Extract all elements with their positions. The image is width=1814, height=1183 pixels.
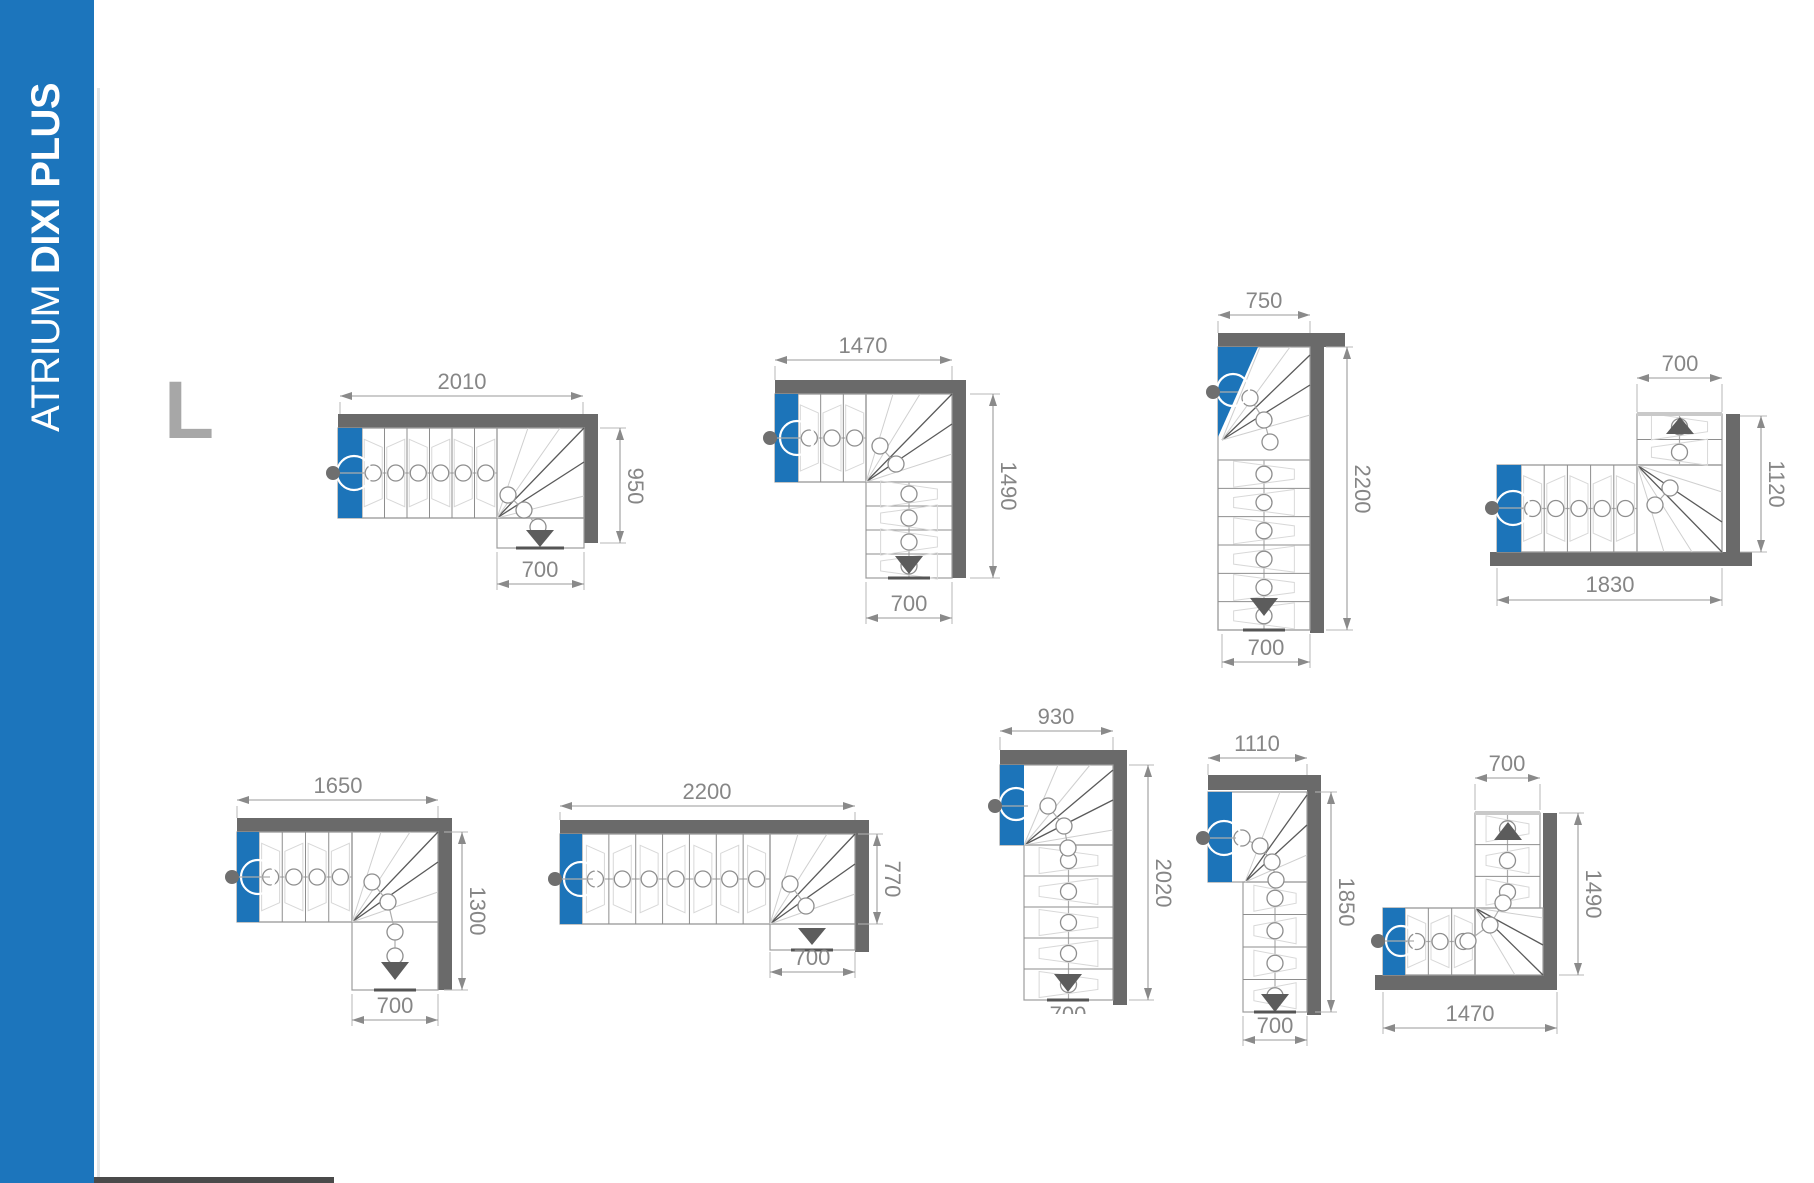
- entry-marker: [1371, 934, 1385, 948]
- dim-label-right: 1300: [465, 887, 490, 936]
- stair-plan-4: 700 1120 1830: [1485, 351, 1789, 606]
- stair-plan-7: 930 2020 700: [988, 704, 1176, 1040]
- dim-label-exit: 700: [1257, 1013, 1294, 1038]
- wall-right: [1307, 775, 1321, 1015]
- stair-plan-1: 2010 950 700: [326, 369, 648, 590]
- stair-plan-8: 1110 1850 700: [1196, 731, 1359, 1046]
- entry-marker: [1485, 501, 1499, 515]
- turn-fan: [352, 832, 438, 922]
- wall-top: [237, 818, 452, 832]
- entry-marker: [988, 799, 1002, 813]
- dim-label-exit: 700: [1248, 635, 1285, 660]
- turn-steps: [872, 438, 904, 472]
- wall-bottom: [1375, 975, 1557, 990]
- dim-label-right: 770: [880, 861, 905, 898]
- wall-top: [1208, 775, 1313, 790]
- dim-label-exit: 700: [794, 945, 831, 970]
- stair-plan-5: 1650 1300 700: [225, 773, 490, 1026]
- dim-label-right: 1490: [996, 462, 1021, 511]
- dim-label-right: 2200: [1350, 465, 1375, 514]
- entry-marker: [1196, 831, 1210, 845]
- entry-marker: [548, 872, 562, 886]
- wall-top: [338, 414, 598, 428]
- stair-run-down: [1243, 882, 1307, 1012]
- wall-right: [1543, 813, 1557, 990]
- stair-run: [582, 834, 770, 924]
- stair-plan-9: 700 1490 1470: [1371, 751, 1606, 1034]
- dim-label-right: 1490: [1581, 870, 1606, 919]
- wall-right: [1113, 750, 1127, 1005]
- turn-steps: [364, 874, 403, 964]
- dim-label-top: 1470: [839, 333, 888, 358]
- dim-label-right: 1850: [1334, 878, 1359, 927]
- catalog-page: ATRIUM DIXI PLUS L 2010 950 700: [0, 0, 1814, 1183]
- stair-run: [1521, 465, 1637, 552]
- dim-label-top: 2010: [438, 369, 487, 394]
- dim-label-top: 1650: [314, 773, 363, 798]
- clip-cover: [1030, 1014, 1106, 1040]
- dim-label-right: 950: [623, 468, 648, 505]
- wall-right: [438, 818, 452, 990]
- dim-label-top: 2200: [683, 779, 732, 804]
- entry-marker: [763, 431, 777, 445]
- dim-label-right: 2020: [1151, 859, 1176, 908]
- dim-label-top: 750: [1246, 288, 1283, 313]
- wall-top: [560, 820, 869, 834]
- dim-label-exit: 700: [377, 993, 414, 1018]
- exit-arrow-down-icon: [526, 530, 554, 547]
- exit-arrow-up-icon: [1494, 822, 1522, 840]
- dim-label-exit: 700: [522, 557, 559, 582]
- entry-marker: [1206, 385, 1220, 399]
- wall-right: [1726, 414, 1740, 566]
- first-step: [1000, 765, 1024, 845]
- exit-arrow-down-icon: [1054, 974, 1082, 992]
- dim-label-exit: 700: [891, 591, 928, 616]
- turn-steps: [1460, 895, 1511, 949]
- wall-bottom: [1490, 552, 1752, 566]
- wall-top: [1000, 750, 1127, 765]
- entry-marker: [225, 870, 239, 884]
- stair-plan-2: 1470 1490 700: [763, 333, 1021, 624]
- wall-right: [1310, 333, 1324, 633]
- exit-arrow-down-icon: [895, 556, 923, 574]
- dim-label-bottom: 1830: [1586, 572, 1635, 597]
- turn-steps: [1647, 480, 1678, 513]
- wall-right: [855, 820, 869, 952]
- stair-plan-6: 2200 770 700: [548, 779, 905, 978]
- stair-run: [798, 394, 866, 482]
- dim-label-exit: 700: [1662, 351, 1699, 376]
- exit-arrow-down-icon: [381, 962, 409, 980]
- stair-plan-3: 750 2200 700: [1206, 288, 1375, 668]
- dim-label-top: 930: [1038, 704, 1075, 729]
- stair-run: [362, 428, 497, 518]
- dim-label-bottom: 1470: [1446, 1001, 1495, 1026]
- dim-label-right: 1120: [1764, 460, 1789, 507]
- turn-fan: [497, 428, 584, 518]
- exit-arrow-down-icon: [798, 928, 826, 945]
- dim-label-exit: 700: [1489, 751, 1526, 776]
- first-step: [1208, 792, 1232, 882]
- wall-top: [1218, 333, 1345, 347]
- wall-top: [775, 380, 966, 394]
- exit-arrow-down-icon: [1250, 598, 1278, 616]
- entry-marker: [326, 466, 340, 480]
- stair-run: [259, 832, 352, 922]
- stair-plans-canvas: 2010 950 700 1470 1490 700: [0, 0, 1814, 1183]
- dim-label-top: 1110: [1234, 731, 1280, 756]
- wall-right: [584, 414, 598, 543]
- wall-right: [952, 380, 966, 578]
